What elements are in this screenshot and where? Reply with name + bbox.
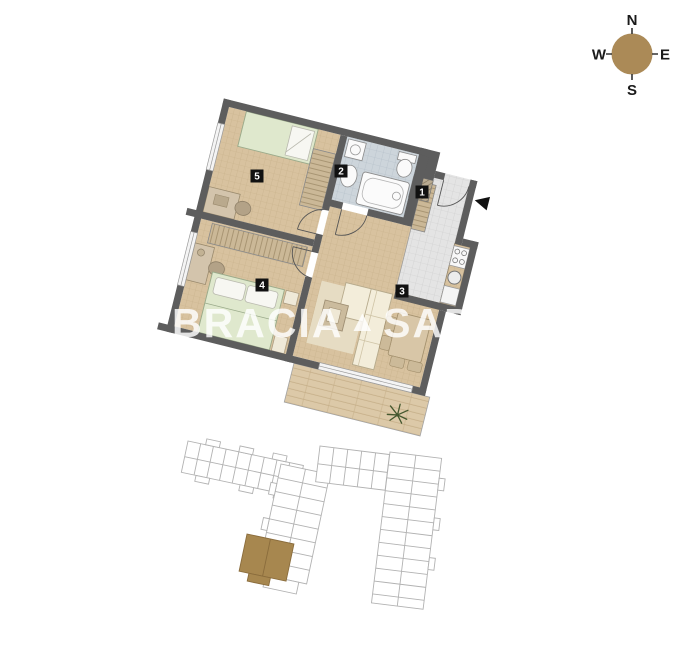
- room-4-number: 4: [259, 281, 265, 292]
- washing-machine: [344, 139, 366, 161]
- floor-plan-canvas: 1 2 3 4 5 N S E W: [0, 0, 697, 655]
- site-plan: [180, 435, 447, 610]
- side-table: [283, 290, 299, 306]
- room-2-number: 2: [338, 167, 344, 178]
- compass-label-south: S: [627, 82, 637, 99]
- label-room-3: 3: [396, 285, 409, 298]
- apartment-plan: [147, 96, 497, 438]
- floor-plan-page: 1 2 3 4 5 N S E W: [0, 0, 697, 655]
- compass-disc: [612, 34, 653, 75]
- compass-label-west: W: [592, 47, 607, 64]
- compass-label-north: N: [627, 12, 638, 29]
- label-room-4: 4: [256, 279, 269, 292]
- label-room-5: 5: [251, 170, 264, 183]
- label-room-1: 1: [416, 186, 429, 199]
- room-5-number: 5: [254, 172, 260, 183]
- highlighted-unit: [237, 534, 294, 589]
- entrance-arrow-icon: [473, 193, 490, 210]
- label-room-2: 2: [335, 165, 348, 178]
- room-1-number: 1: [419, 188, 425, 199]
- compass-label-east: E: [660, 47, 670, 64]
- room-3-number: 3: [399, 287, 405, 298]
- compass: N S E W: [592, 12, 670, 99]
